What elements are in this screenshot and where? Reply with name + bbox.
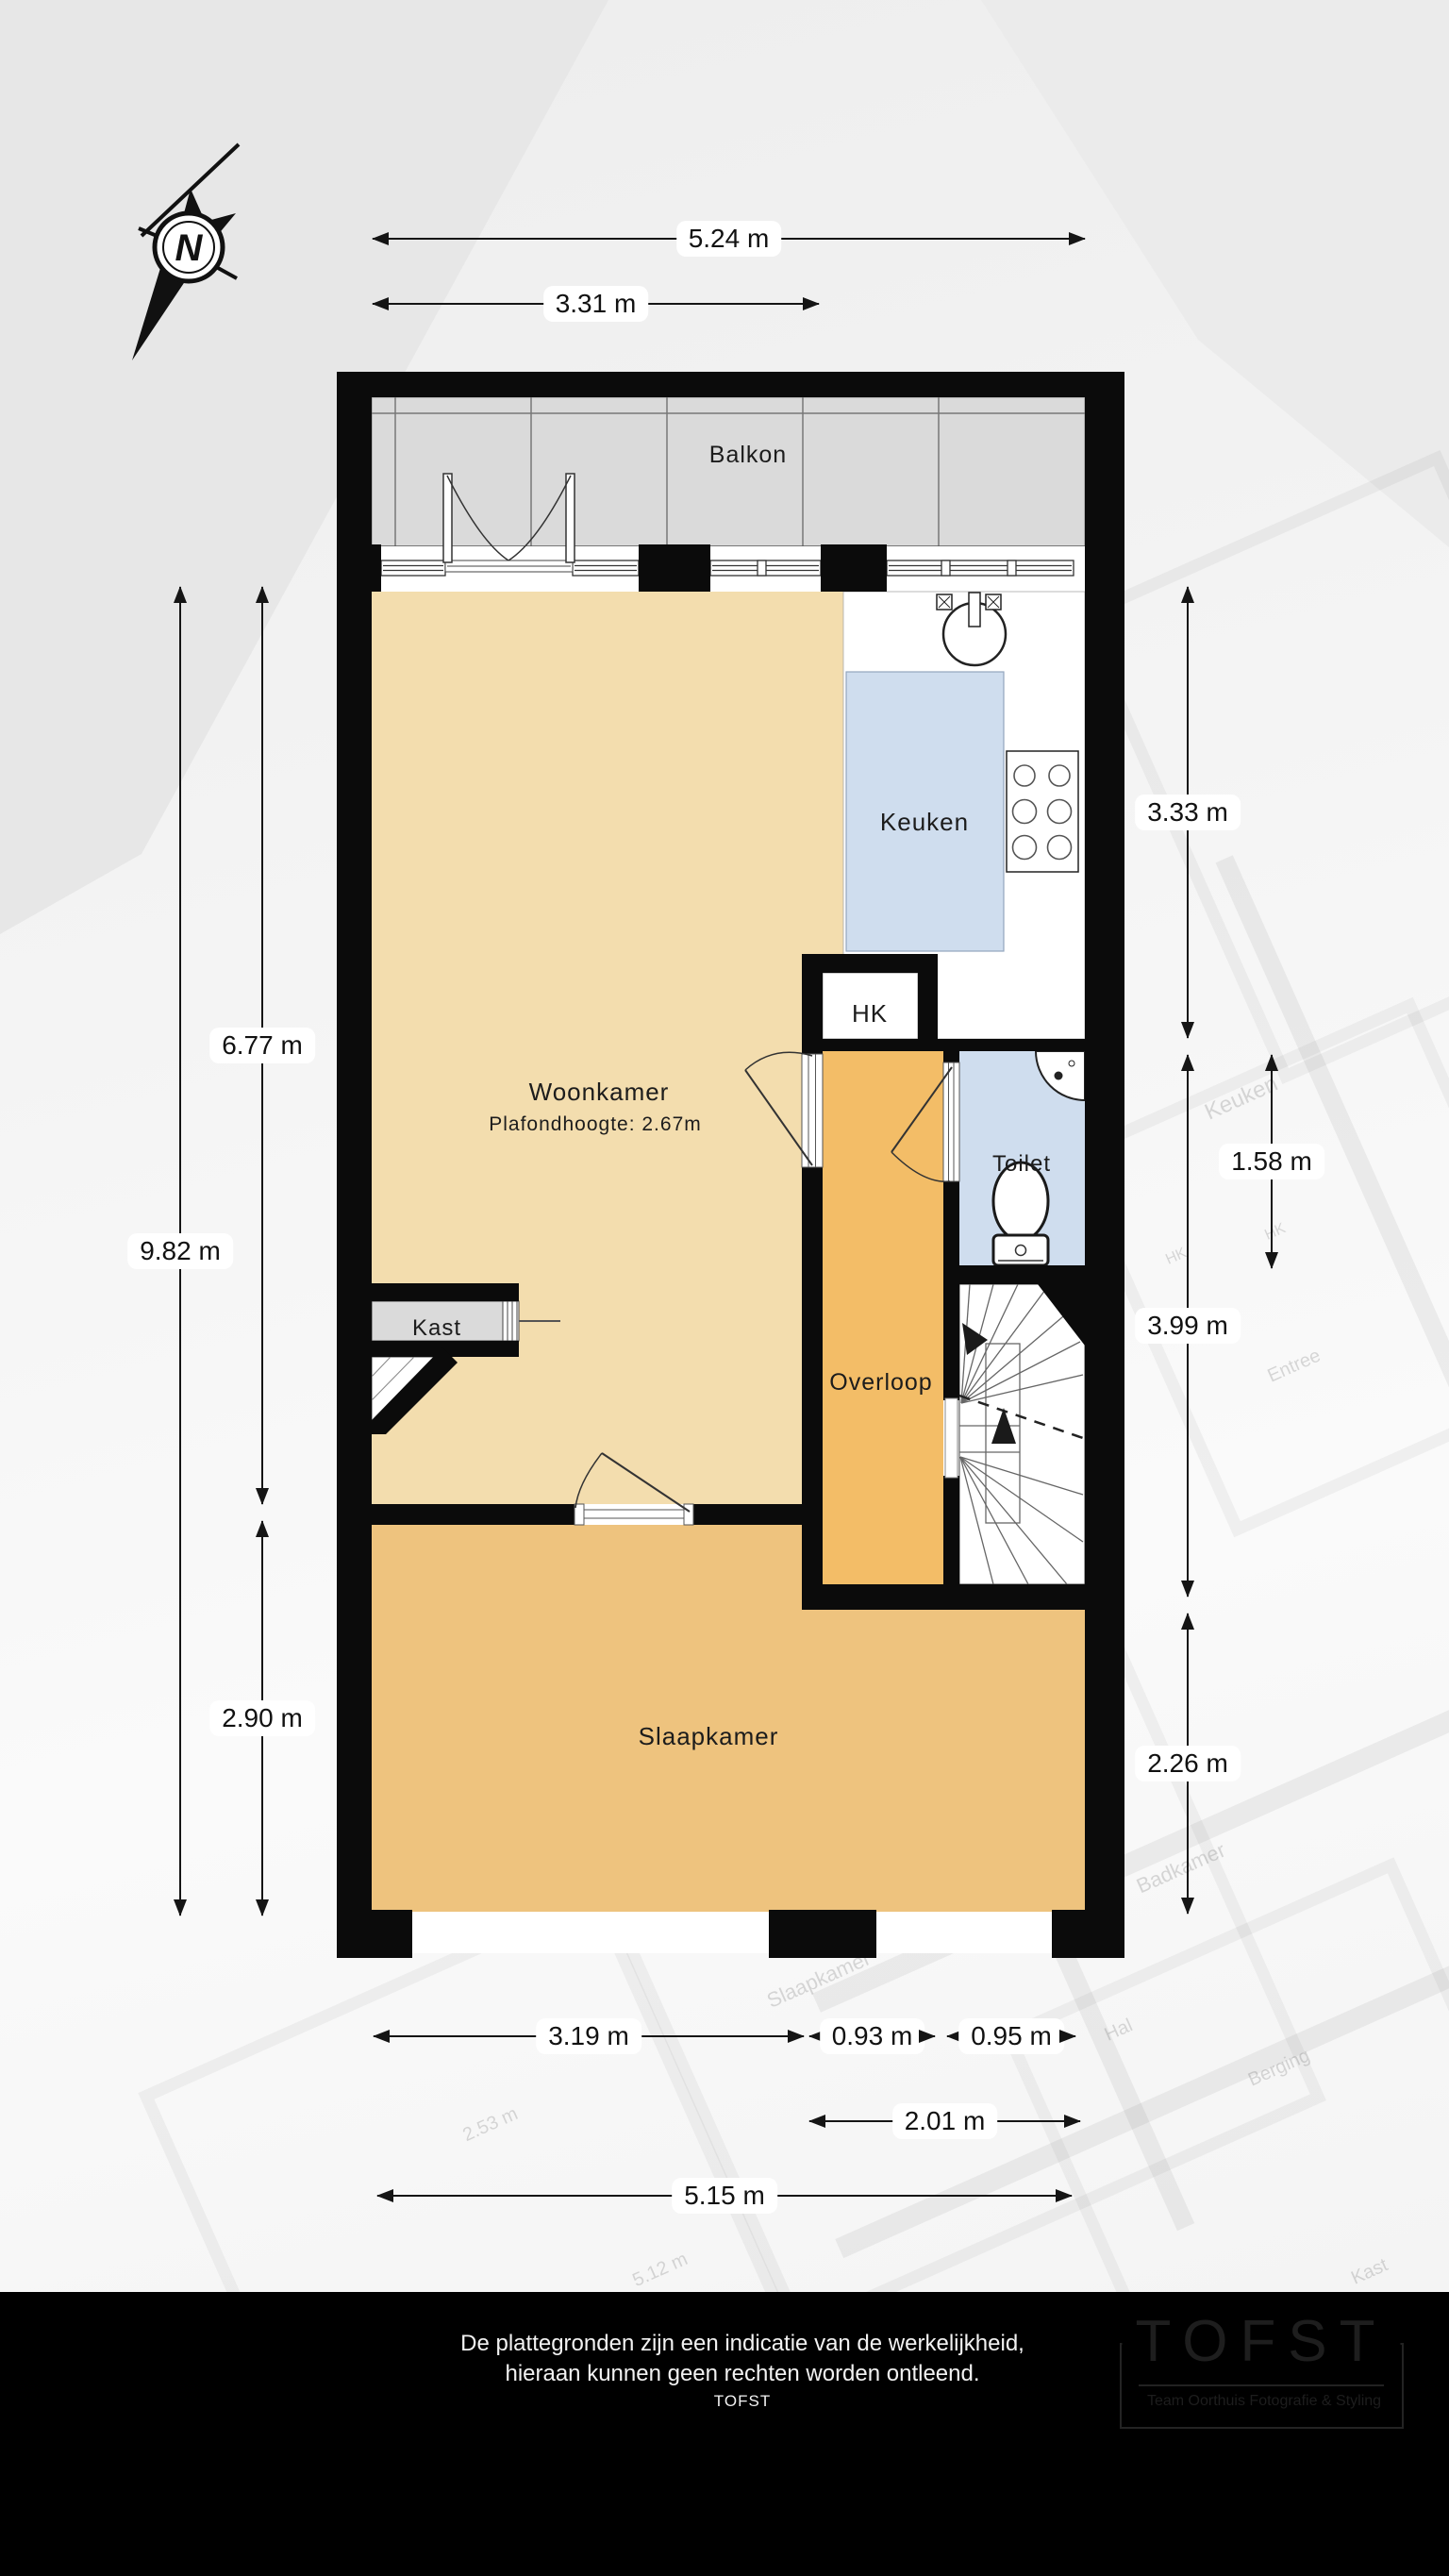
dimension-width-overloop-stairs: 2.01 m — [809, 2120, 1080, 2122]
dimension-height-slaapkamer-left: 2.90 m — [261, 1521, 263, 1915]
dimension-height-woonkamer: 6.77 m — [261, 587, 263, 1504]
floor-plan: Balkon Keuken HK Woonkamer Plafondhoogte… — [337, 372, 1124, 1958]
dimension-width-slaapkamer: 3.19 m — [374, 2035, 804, 2037]
dimension-height-overloop: 3.99 m — [1187, 1055, 1189, 1597]
dimension-width-overloop: 0.93 m — [809, 2035, 935, 2037]
label-hk: HK — [852, 999, 888, 1028]
dimension-height-total-left: 9.82 m — [179, 587, 181, 1915]
tofst-logo-title: TOFST — [1122, 2308, 1400, 2375]
room-balkon-floor — [372, 397, 1085, 546]
toilet-wc — [993, 1163, 1048, 1265]
dimension-height-keuken: 3.33 m — [1187, 587, 1189, 1038]
stairs-opening — [945, 1398, 958, 1478]
label-plafondhoogte: Plafondhoogte: 2.67m — [489, 1113, 702, 1135]
tofst-logo-subtitle: Team Oorthuis Fotografie & Styling — [1147, 2393, 1381, 2410]
room-slaapkamer-floor-left — [372, 1525, 802, 1912]
label-balkon: Balkon — [709, 442, 787, 468]
dimension-width-total-bottom: 5.15 m — [377, 2195, 1072, 2197]
dimension-width-total-top: 5.24 m — [373, 238, 1085, 240]
label-kast: Kast — [412, 1315, 461, 1341]
label-keuken: Keuken — [880, 808, 969, 836]
label-toilet: Toilet — [992, 1151, 1051, 1177]
room-slaapkamer-floor-right — [802, 1610, 1085, 1912]
compass-north-icon: N — [104, 118, 283, 392]
label-woonkamer: Woonkamer — [529, 1078, 670, 1106]
kitchen-stove — [1007, 751, 1078, 872]
dimension-height-toilet: 1.58 m — [1271, 1055, 1273, 1268]
tofst-logo-divider — [1139, 2384, 1384, 2386]
dimension-width-stairwell: 0.95 m — [947, 2035, 1075, 2037]
dimension-width-woonkamer: 3.31 m — [373, 303, 819, 305]
label-overloop: Overloop — [829, 1369, 932, 1396]
stairwell-floor — [959, 1284, 1085, 1584]
room-overloop-floor — [818, 1051, 943, 1584]
compass-letter: N — [175, 227, 204, 269]
label-slaapkamer: Slaapkamer — [639, 1722, 779, 1750]
dimension-height-slaapkamer-right: 2.26 m — [1187, 1614, 1189, 1914]
